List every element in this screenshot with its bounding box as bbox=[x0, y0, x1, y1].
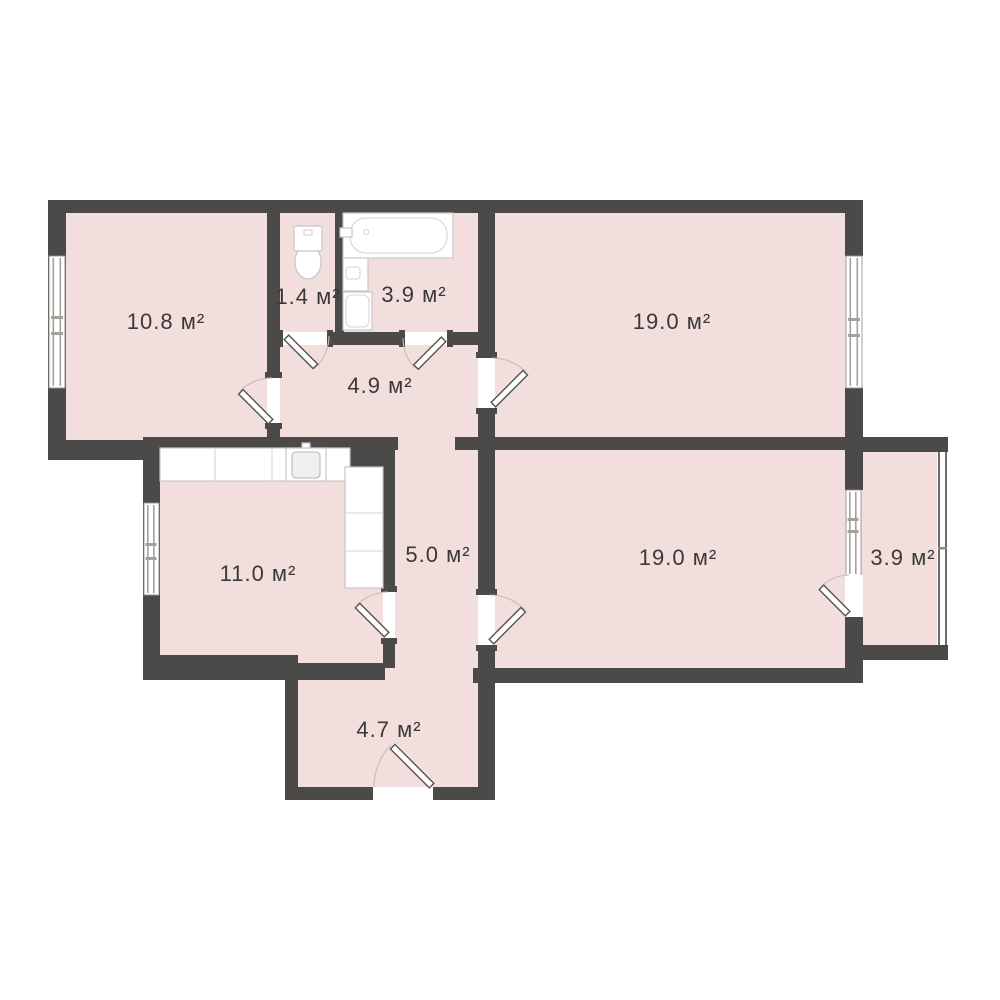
balcony-glazing bbox=[937, 452, 949, 645]
counter-right-column bbox=[345, 467, 383, 588]
window-mullion bbox=[51, 316, 63, 319]
room-label-top-right: 19.0 м² bbox=[633, 309, 711, 334]
window-frame bbox=[53, 258, 55, 386]
kitchen-sink-basin bbox=[292, 452, 320, 478]
window-frame bbox=[60, 258, 62, 386]
bathtub-faucet-icon bbox=[340, 228, 352, 237]
window-glass bbox=[49, 256, 65, 388]
door-jamb bbox=[476, 645, 497, 651]
window-frame bbox=[857, 258, 859, 386]
window-glass bbox=[144, 503, 159, 595]
window-frame bbox=[153, 505, 155, 593]
window-frame bbox=[147, 505, 149, 593]
window-kitchen bbox=[144, 503, 159, 595]
window-frame bbox=[850, 258, 852, 386]
window-room-top-left bbox=[49, 256, 65, 388]
room-label-corridor: 5.0 м² bbox=[405, 542, 470, 567]
room-label-bottom-right: 19.0 м² bbox=[639, 545, 717, 570]
wall-segment bbox=[455, 437, 863, 450]
toilet bbox=[294, 226, 322, 279]
wall-segment bbox=[845, 388, 863, 437]
kitchen-tap-icon bbox=[302, 443, 310, 448]
door-jamb bbox=[265, 372, 282, 378]
wall-segment bbox=[48, 200, 863, 213]
window-mullion bbox=[848, 318, 860, 321]
wall-segment bbox=[845, 200, 863, 256]
wall-segment bbox=[383, 460, 395, 592]
window-glass bbox=[846, 256, 862, 388]
window-mullion bbox=[146, 543, 157, 546]
window-mullion bbox=[848, 518, 859, 521]
wall-segment bbox=[858, 645, 948, 660]
floor-plan: 10.8 м² 1.4 м² 3.9 м² 19.0 м² 4.9 м² 11.… bbox=[0, 0, 1000, 1000]
glazing-mullion bbox=[938, 547, 947, 550]
door-jamb bbox=[277, 330, 283, 347]
wall-segment bbox=[473, 668, 863, 683]
room-label-top-left: 10.8 м² bbox=[127, 309, 205, 334]
wall-segment bbox=[478, 450, 495, 595]
door-jamb bbox=[476, 589, 497, 595]
wall-segment bbox=[288, 663, 385, 680]
washbasin-body bbox=[343, 258, 368, 291]
door-jamb bbox=[381, 638, 397, 644]
door-jamb bbox=[399, 330, 405, 347]
room-label-hallway: 4.9 м² bbox=[347, 373, 412, 398]
window-room-top-right bbox=[846, 256, 862, 388]
bathtub bbox=[340, 213, 453, 258]
room-label-kitchen: 11.0 м² bbox=[220, 561, 297, 586]
wall-segment bbox=[143, 655, 298, 680]
door-gap bbox=[373, 787, 433, 800]
wall-segment bbox=[845, 437, 948, 452]
window-mullion bbox=[848, 530, 859, 533]
wall-segment bbox=[478, 200, 495, 358]
wall-segment bbox=[350, 437, 395, 467]
window-mullion bbox=[51, 332, 63, 335]
wall-segment bbox=[327, 332, 405, 345]
washbasin bbox=[343, 258, 368, 291]
floor-areas bbox=[60, 207, 948, 788]
room-label-wc: 1.4 м² bbox=[275, 284, 340, 309]
room-label-bathroom: 3.9 м² bbox=[381, 282, 446, 307]
window-mullion bbox=[146, 557, 157, 560]
washing-machine bbox=[343, 292, 372, 330]
window-balcony-inner bbox=[846, 490, 861, 576]
window-mullion bbox=[848, 334, 860, 337]
room-label-entrance-hall: 4.7 м² bbox=[356, 717, 421, 742]
room-label-balcony: 3.9 м² bbox=[870, 545, 935, 570]
wall-segment bbox=[285, 787, 373, 800]
door-jamb bbox=[476, 408, 497, 414]
door-jamb bbox=[447, 330, 453, 347]
door-jamb bbox=[476, 352, 497, 358]
